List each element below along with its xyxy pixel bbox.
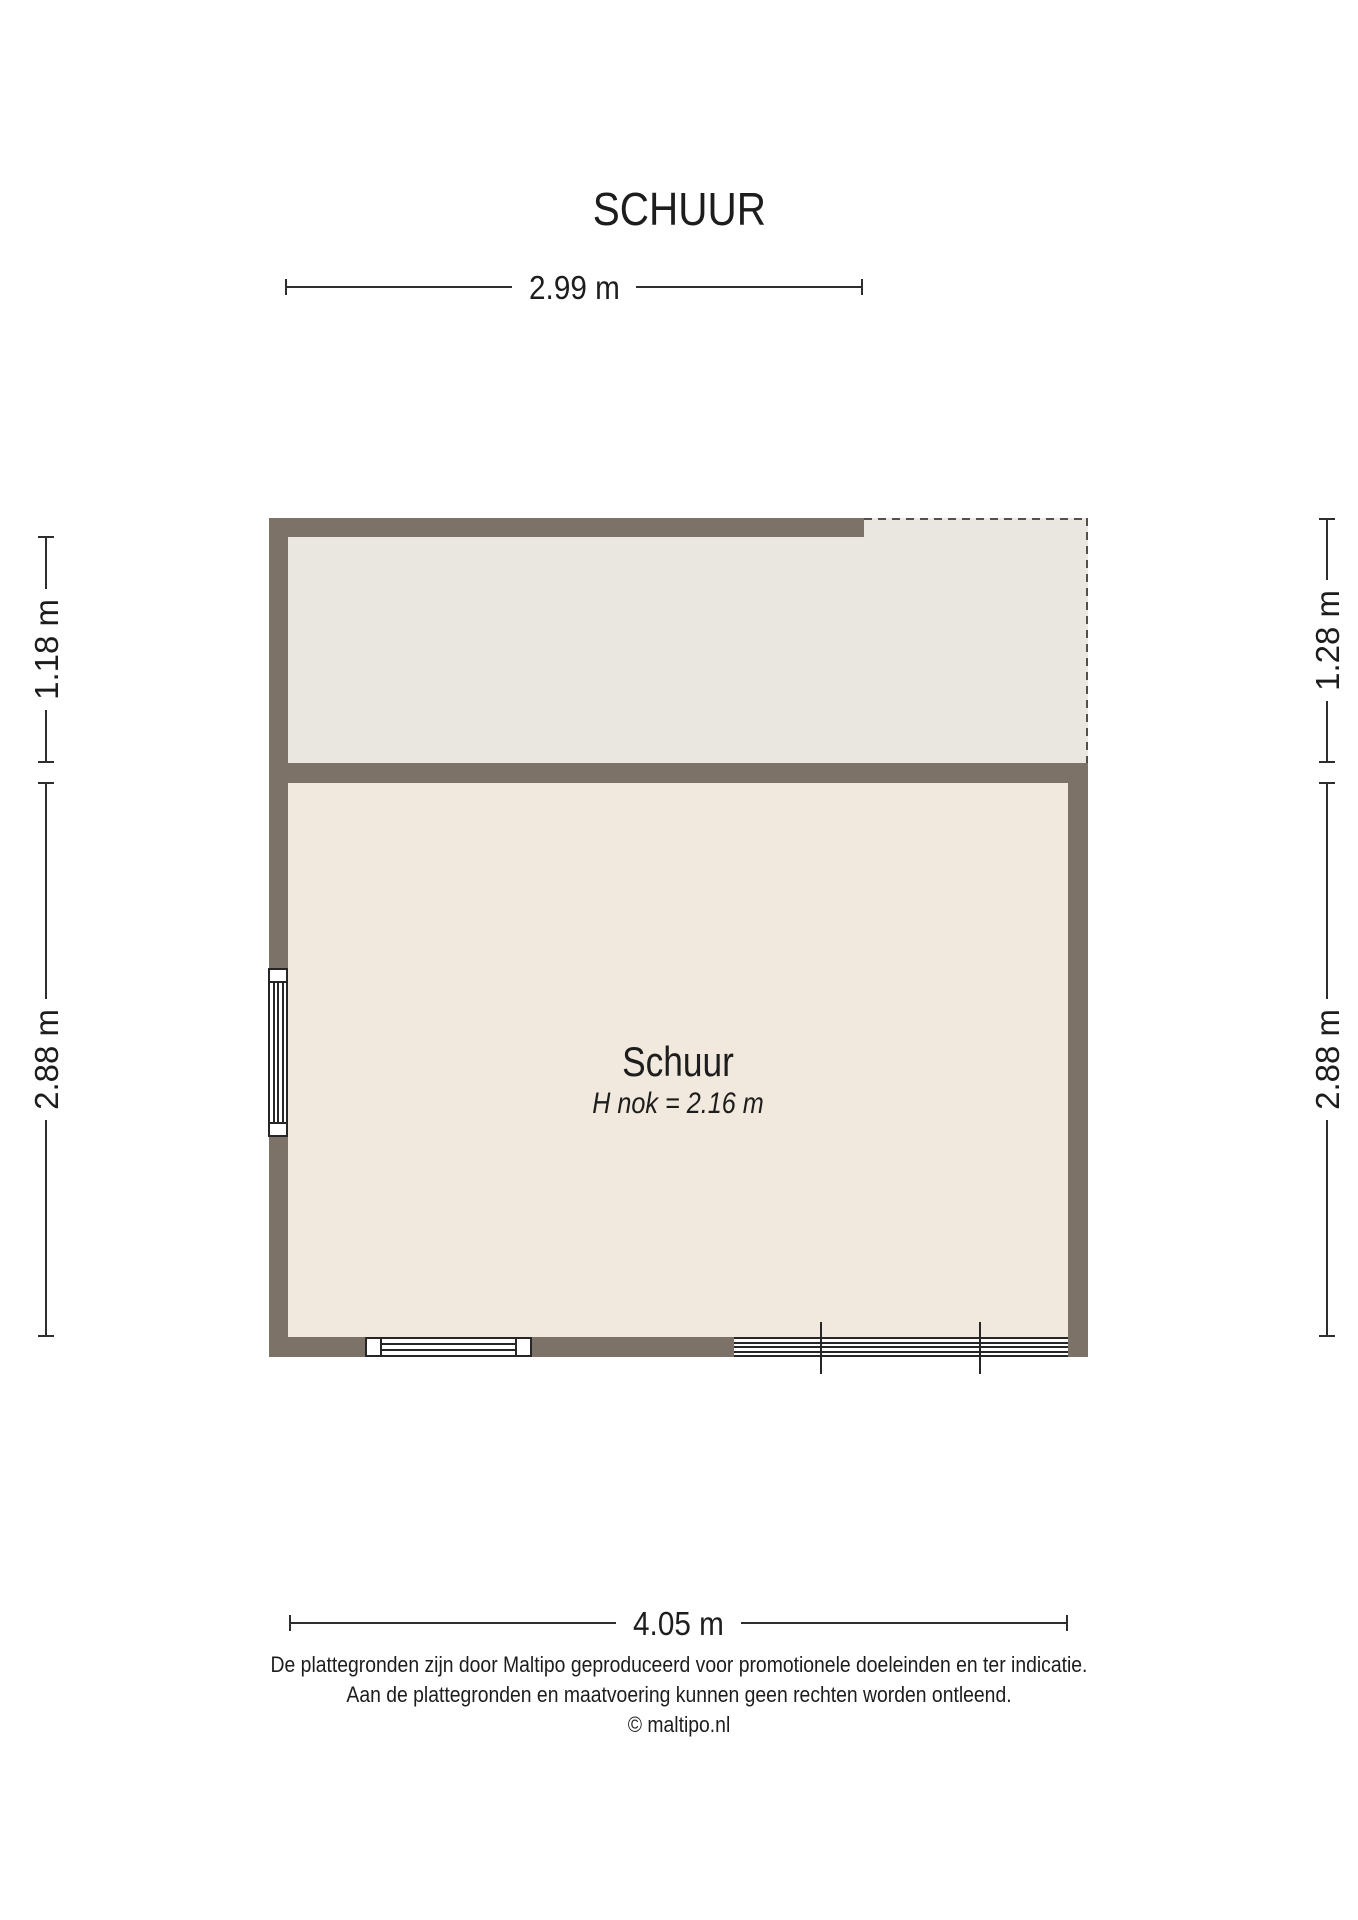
- window-frame-cap: [270, 1122, 286, 1135]
- dimension-label: 2.88 m: [1311, 1009, 1344, 1110]
- dimension-end-tick: [861, 279, 863, 295]
- floorplan: Schuur H nok = 2.16 m: [269, 518, 1088, 1357]
- sliding-door-rail-line: [734, 1342, 1068, 1344]
- dimension-left-lower: 2.88 m: [30, 782, 62, 1337]
- dimension-line-segment: [291, 1622, 616, 1624]
- window-frame-cap: [367, 1339, 382, 1355]
- window-pane-line: [273, 983, 275, 1122]
- dimension-end-tick: [1319, 1335, 1335, 1337]
- dimension-line-segment: [1326, 784, 1328, 999]
- window-left: [268, 968, 288, 1137]
- dimension-line-segment: [45, 710, 47, 761]
- dimension-right-upper: 1.28 m: [1311, 518, 1343, 763]
- dimension-end-tick: [1319, 761, 1335, 763]
- window-frame-cap: [515, 1339, 530, 1355]
- dimension-line-segment: [636, 286, 861, 288]
- wall-top: [269, 518, 864, 537]
- window-frame-cap: [270, 970, 286, 983]
- dimension-label: 2.88 m: [30, 1009, 63, 1110]
- dimension-right-lower: 2.88 m: [1311, 782, 1343, 1337]
- sliding-door-rail-line: [734, 1346, 1068, 1348]
- dashed-boundary-top: [864, 518, 1088, 520]
- wall-right: [1068, 763, 1088, 1357]
- window-panes: [270, 983, 286, 1122]
- dimension-top-width: 2.99 m: [285, 271, 863, 303]
- dimension-end-tick: [1066, 1615, 1068, 1631]
- window-pane-line: [382, 1343, 515, 1345]
- room-label: Schuur H nok = 2.16 m: [350, 1040, 1005, 1124]
- dimension-line-segment: [741, 1622, 1066, 1624]
- dimension-line-segment: [1326, 520, 1328, 580]
- page-title: SCHUUR: [0, 186, 1358, 232]
- footer-copyright: © maltipo.nl: [81, 1710, 1276, 1740]
- dimension-end-tick: [38, 761, 54, 763]
- window-panes: [382, 1339, 515, 1355]
- dimension-label: 4.05 m: [633, 1607, 724, 1640]
- dimension-line-segment: [45, 1120, 47, 1335]
- room-name: Schuur: [350, 1040, 1005, 1084]
- window-pane-line: [382, 1349, 515, 1351]
- window-bottom: [365, 1337, 532, 1357]
- footer-disclaimer-line2: Aan de plattegronden en maatvoering kunn…: [81, 1680, 1276, 1710]
- dimension-end-tick: [38, 1335, 54, 1337]
- dimension-label: 2.99 m: [529, 271, 620, 304]
- dimension-label: 1.18 m: [30, 599, 63, 700]
- dimension-label: 1.28 m: [1311, 590, 1344, 691]
- room-ridge-height: H nok = 2.16 m: [350, 1084, 1005, 1124]
- sliding-door-tick: [979, 1322, 981, 1374]
- dashed-boundary-right: [1086, 518, 1088, 763]
- sliding-door-tick: [820, 1322, 822, 1374]
- window-pane-line: [282, 983, 284, 1122]
- dimension-left-upper: 1.18 m: [30, 536, 62, 763]
- dimension-line-segment: [1326, 1120, 1328, 1335]
- footer-disclaimer: De plattegronden zijn door Maltipo gepro…: [81, 1650, 1276, 1740]
- dimension-line-segment: [45, 538, 47, 589]
- dimension-line-segment: [1326, 701, 1328, 761]
- dimension-line-segment: [287, 286, 512, 288]
- wall-middle: [269, 763, 1088, 783]
- dimension-bottom-width: 4.05 m: [289, 1607, 1068, 1639]
- dimension-line-segment: [45, 784, 47, 999]
- open-area: [288, 537, 1088, 763]
- window-pane-line: [277, 983, 279, 1122]
- open-area-extension: [864, 518, 1088, 537]
- wall-left: [269, 518, 288, 1357]
- page-title-text: SCHUUR: [592, 186, 765, 232]
- sliding-door-rail-line: [734, 1351, 1068, 1353]
- footer-disclaimer-line1: De plattegronden zijn door Maltipo gepro…: [81, 1650, 1276, 1680]
- floorplan-page: SCHUUR 2.99 m 1.18 m 2.88 m 1.28 m 2.88: [0, 0, 1358, 1920]
- sliding-door: [734, 1337, 1068, 1357]
